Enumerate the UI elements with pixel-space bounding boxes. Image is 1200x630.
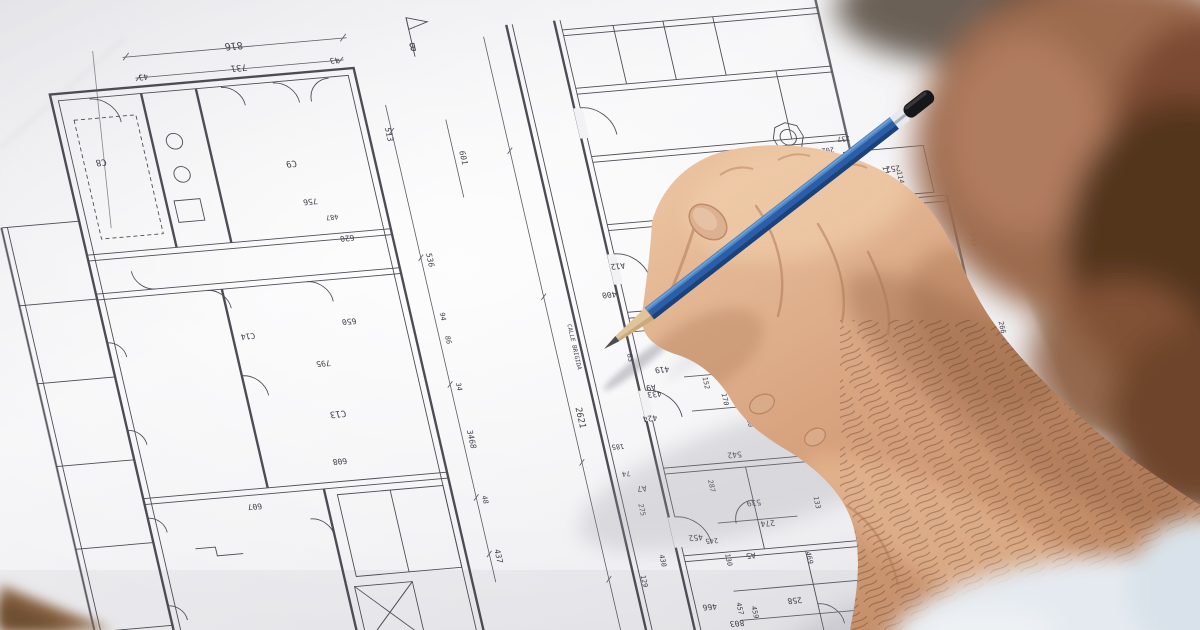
- plan-label: 650: [341, 316, 358, 326]
- plan-label: 803: [729, 618, 746, 628]
- plan-label: 237: [836, 134, 850, 143]
- plan-label: 756: [302, 196, 319, 206]
- plan-label: 424: [642, 413, 659, 423]
- plan-label: 400: [601, 290, 618, 300]
- plan-label: 607: [246, 501, 263, 511]
- plan-label: 258: [786, 595, 803, 605]
- plan-label: C9: [285, 158, 298, 169]
- plan-label: 466: [701, 602, 718, 612]
- plan-label: 608: [331, 456, 348, 466]
- plan-label: 731: [229, 62, 247, 73]
- plan-label: 185: [611, 442, 625, 451]
- plan-label: 419: [654, 364, 671, 374]
- plan-label: A12: [609, 261, 626, 271]
- plan-label: 816: [223, 39, 243, 51]
- plan-label: 795: [315, 358, 332, 368]
- scene-canvas: 8167314343513756487C8C9620650795C14C1360…: [0, 0, 1200, 630]
- plan-label: C13: [329, 408, 347, 419]
- plan-label: C14: [240, 331, 257, 341]
- plan-label: 620: [339, 233, 356, 243]
- plan-label: 487: [325, 212, 339, 221]
- photo-scene: 8167314343513756487C8C9620650795C14C1360…: [0, 0, 1200, 630]
- plan-label: C8: [94, 156, 107, 167]
